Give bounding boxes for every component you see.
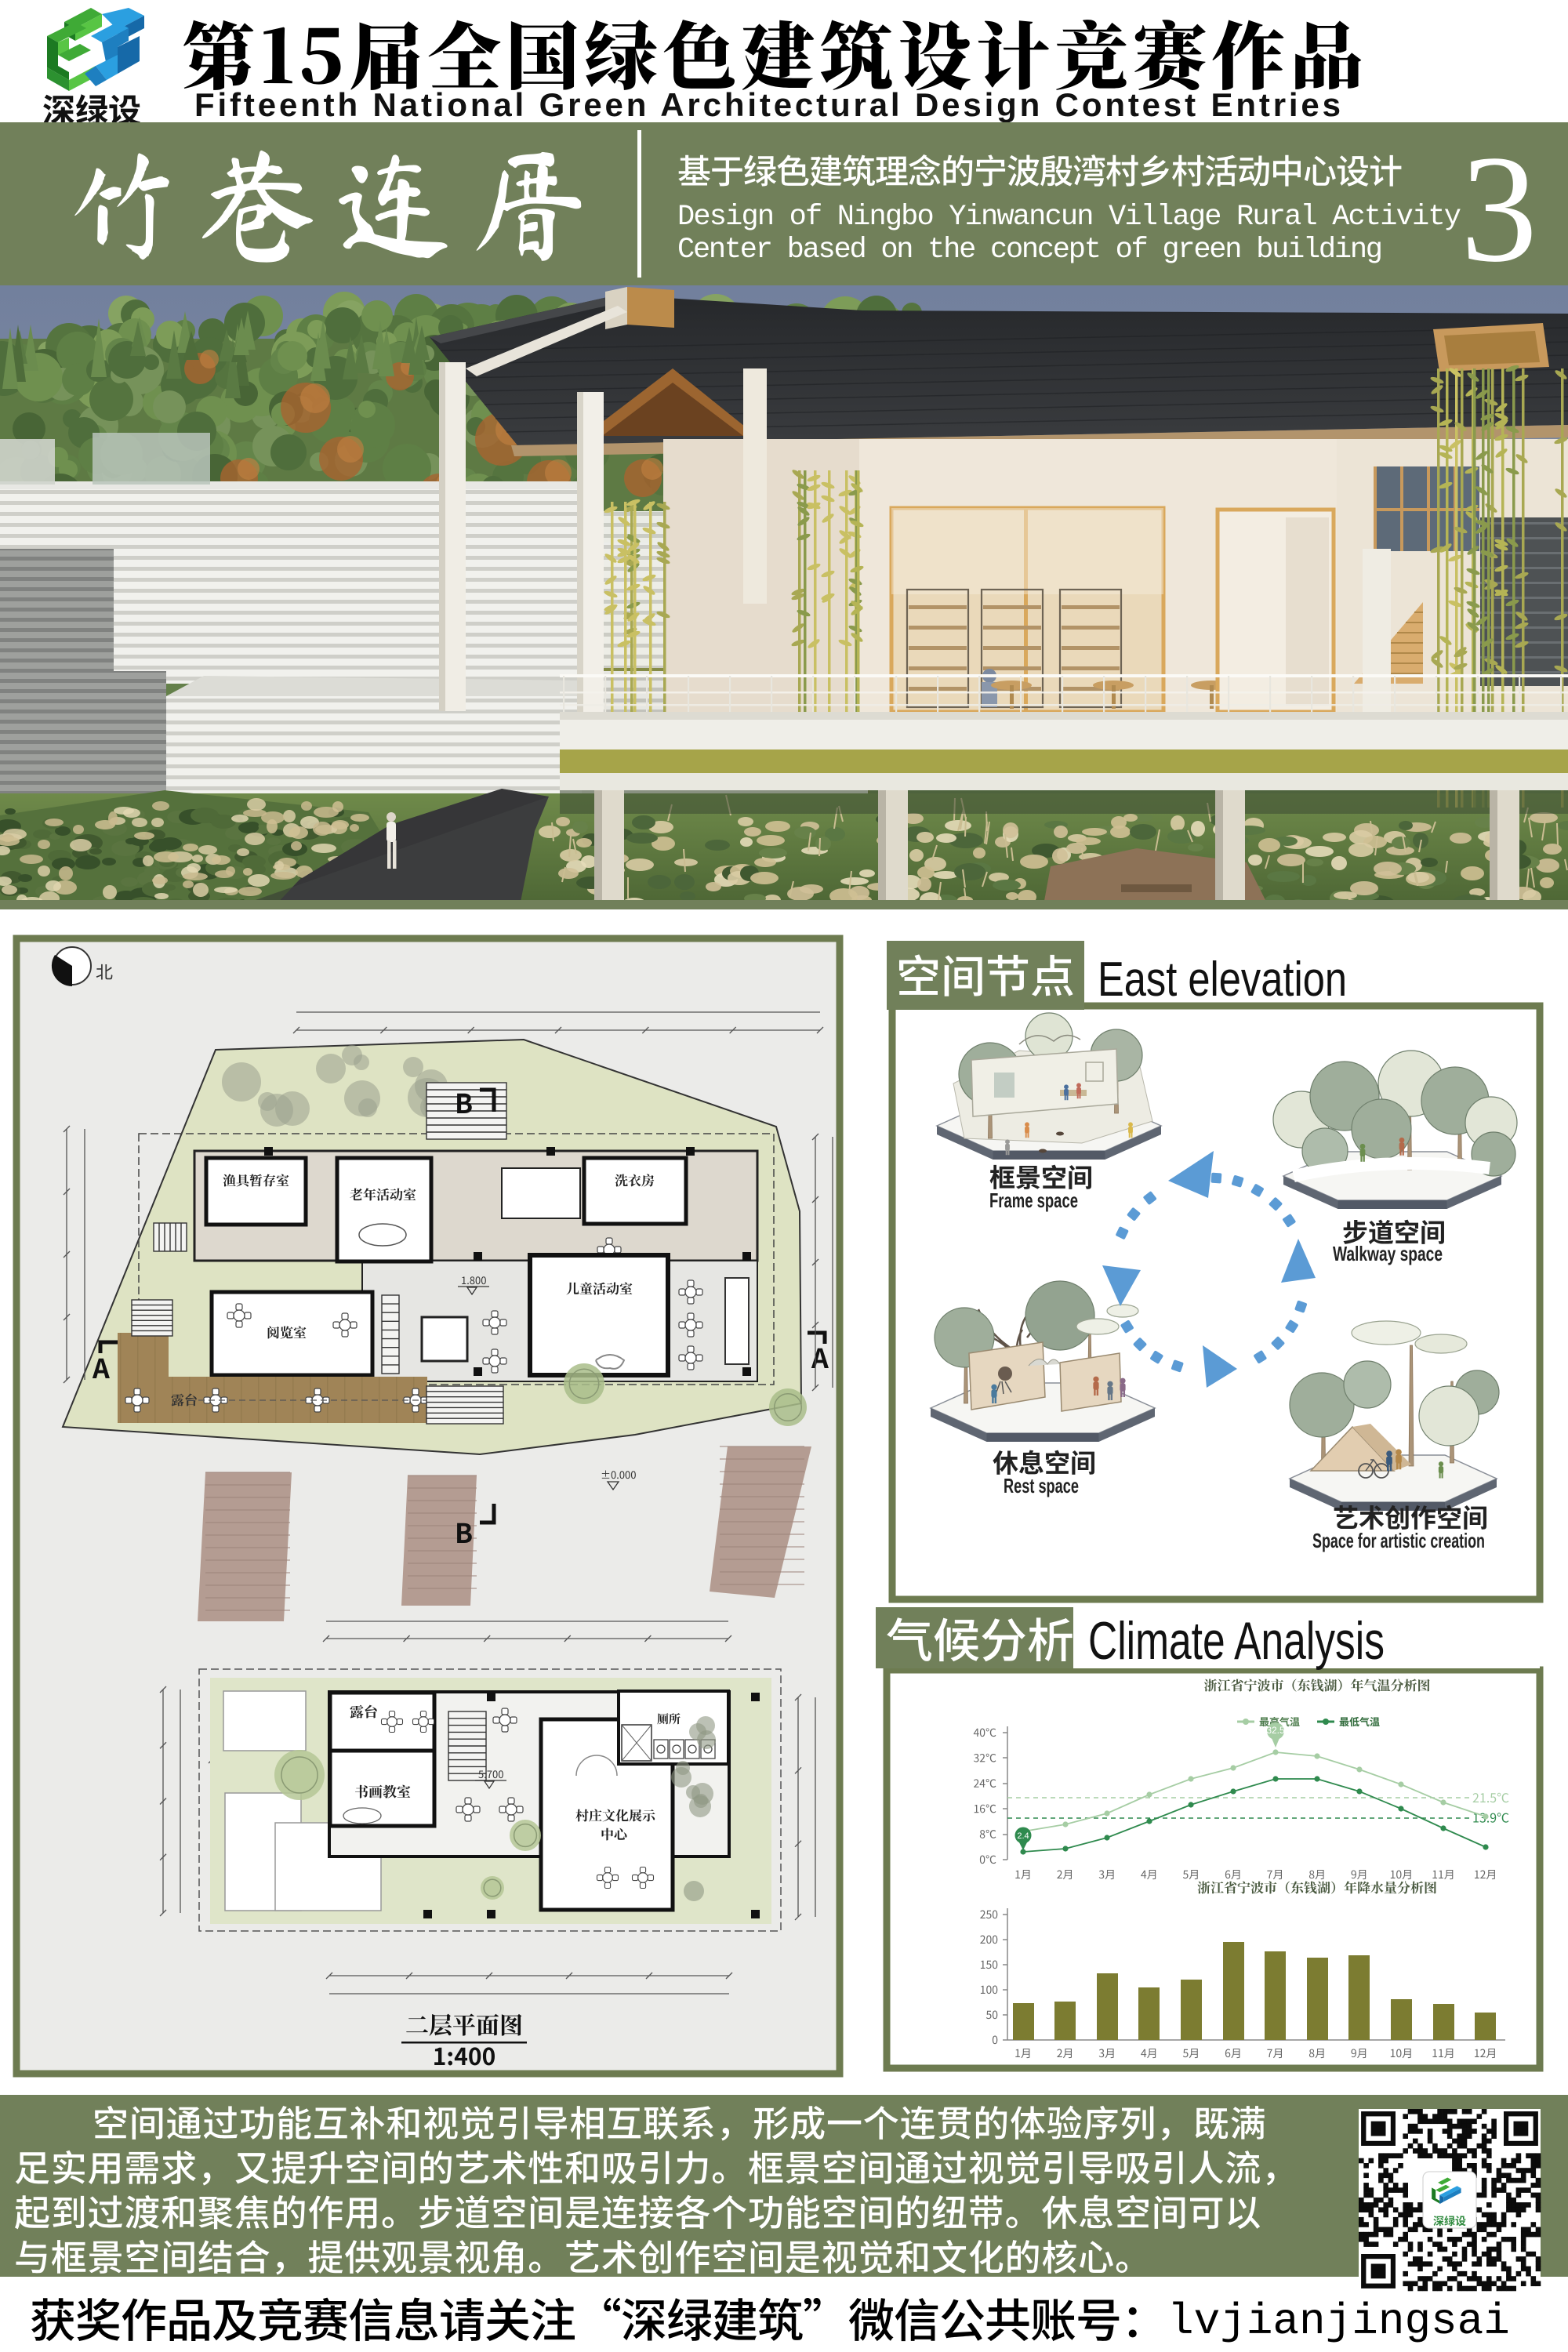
svg-text:Rest space: Rest space xyxy=(1004,1474,1079,1497)
svg-text:East elevation: East elevation xyxy=(1098,953,1347,1007)
svg-text:Center based on the concept of: Center based on the concept of green bui… xyxy=(677,234,1383,267)
svg-text:32.5: 32.5 xyxy=(1266,1725,1285,1736)
svg-text:Climate Analysis: Climate Analysis xyxy=(1088,1611,1385,1671)
svg-text:3: 3 xyxy=(1461,124,1537,294)
svg-text:Walkway space: Walkway space xyxy=(1333,1242,1443,1265)
svg-text:Fifteenth National Green Archi: Fifteenth National Green Architectural D… xyxy=(194,86,1341,123)
svg-text:2.4: 2.4 xyxy=(1017,1831,1029,1841)
svg-text:lvjianjingsai: lvjianjingsai xyxy=(1167,2296,1510,2347)
svg-text:Frame space: Frame space xyxy=(989,1189,1078,1212)
svg-text:Space for artistic creation: Space for artistic creation xyxy=(1312,1529,1485,1552)
svg-text:Design of Ningbo Yinwancun Vil: Design of Ningbo Yinwancun Village Rural… xyxy=(677,201,1461,234)
